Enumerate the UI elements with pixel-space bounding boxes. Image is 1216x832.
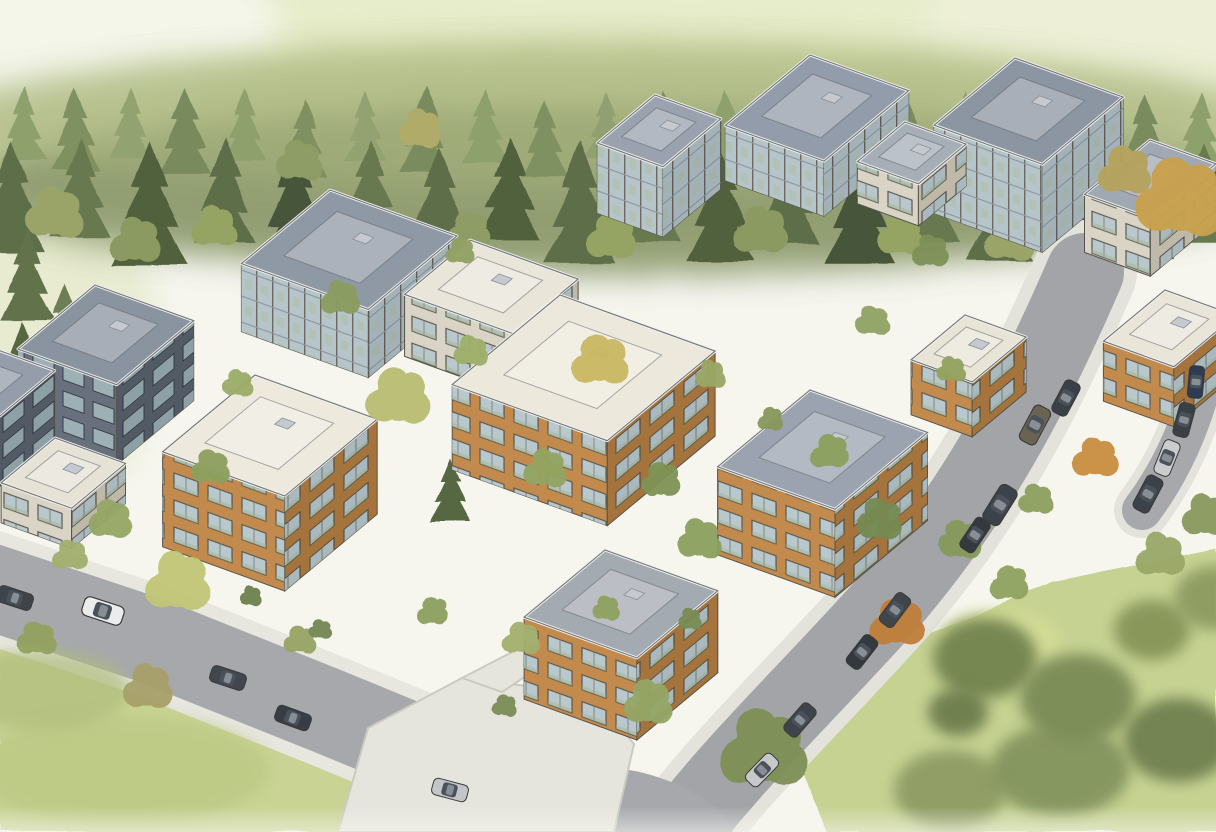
lawn-tree-wash (928, 688, 988, 736)
bottom-fade (0, 806, 1216, 832)
car (1187, 365, 1205, 399)
lawn-tree-wash (933, 618, 1037, 698)
aerial-neighborhood-scene (0, 0, 1216, 832)
watercolor-illustration (0, 0, 1216, 832)
lawn-tree-wash (990, 724, 1130, 816)
